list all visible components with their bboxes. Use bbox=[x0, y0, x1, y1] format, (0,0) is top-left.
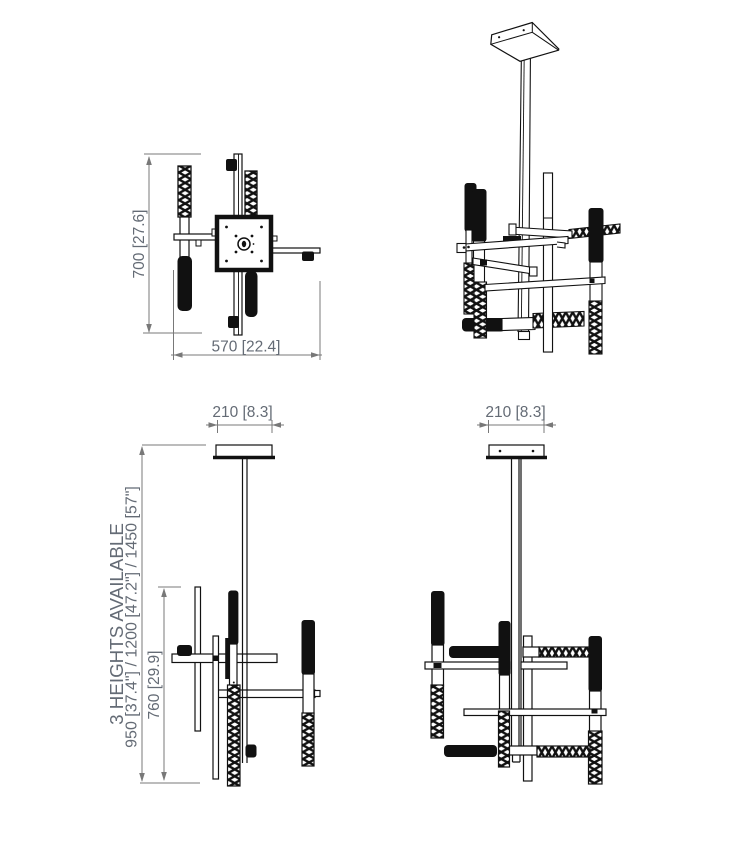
svg-text:570 [22.4]: 570 [22.4] bbox=[212, 339, 281, 356]
svg-text:210 [8.3]: 210 [8.3] bbox=[485, 404, 545, 421]
svg-text:700 [27.6]: 700 [27.6] bbox=[131, 210, 148, 279]
svg-text:950 [37.4"] / 1200 [47.2"] / 1: 950 [37.4"] / 1200 [47.2"] / 1450 [57"] bbox=[124, 486, 141, 748]
svg-text:760 [29.9]: 760 [29.9] bbox=[146, 651, 163, 720]
svg-text:210 [8.3]: 210 [8.3] bbox=[212, 404, 272, 421]
